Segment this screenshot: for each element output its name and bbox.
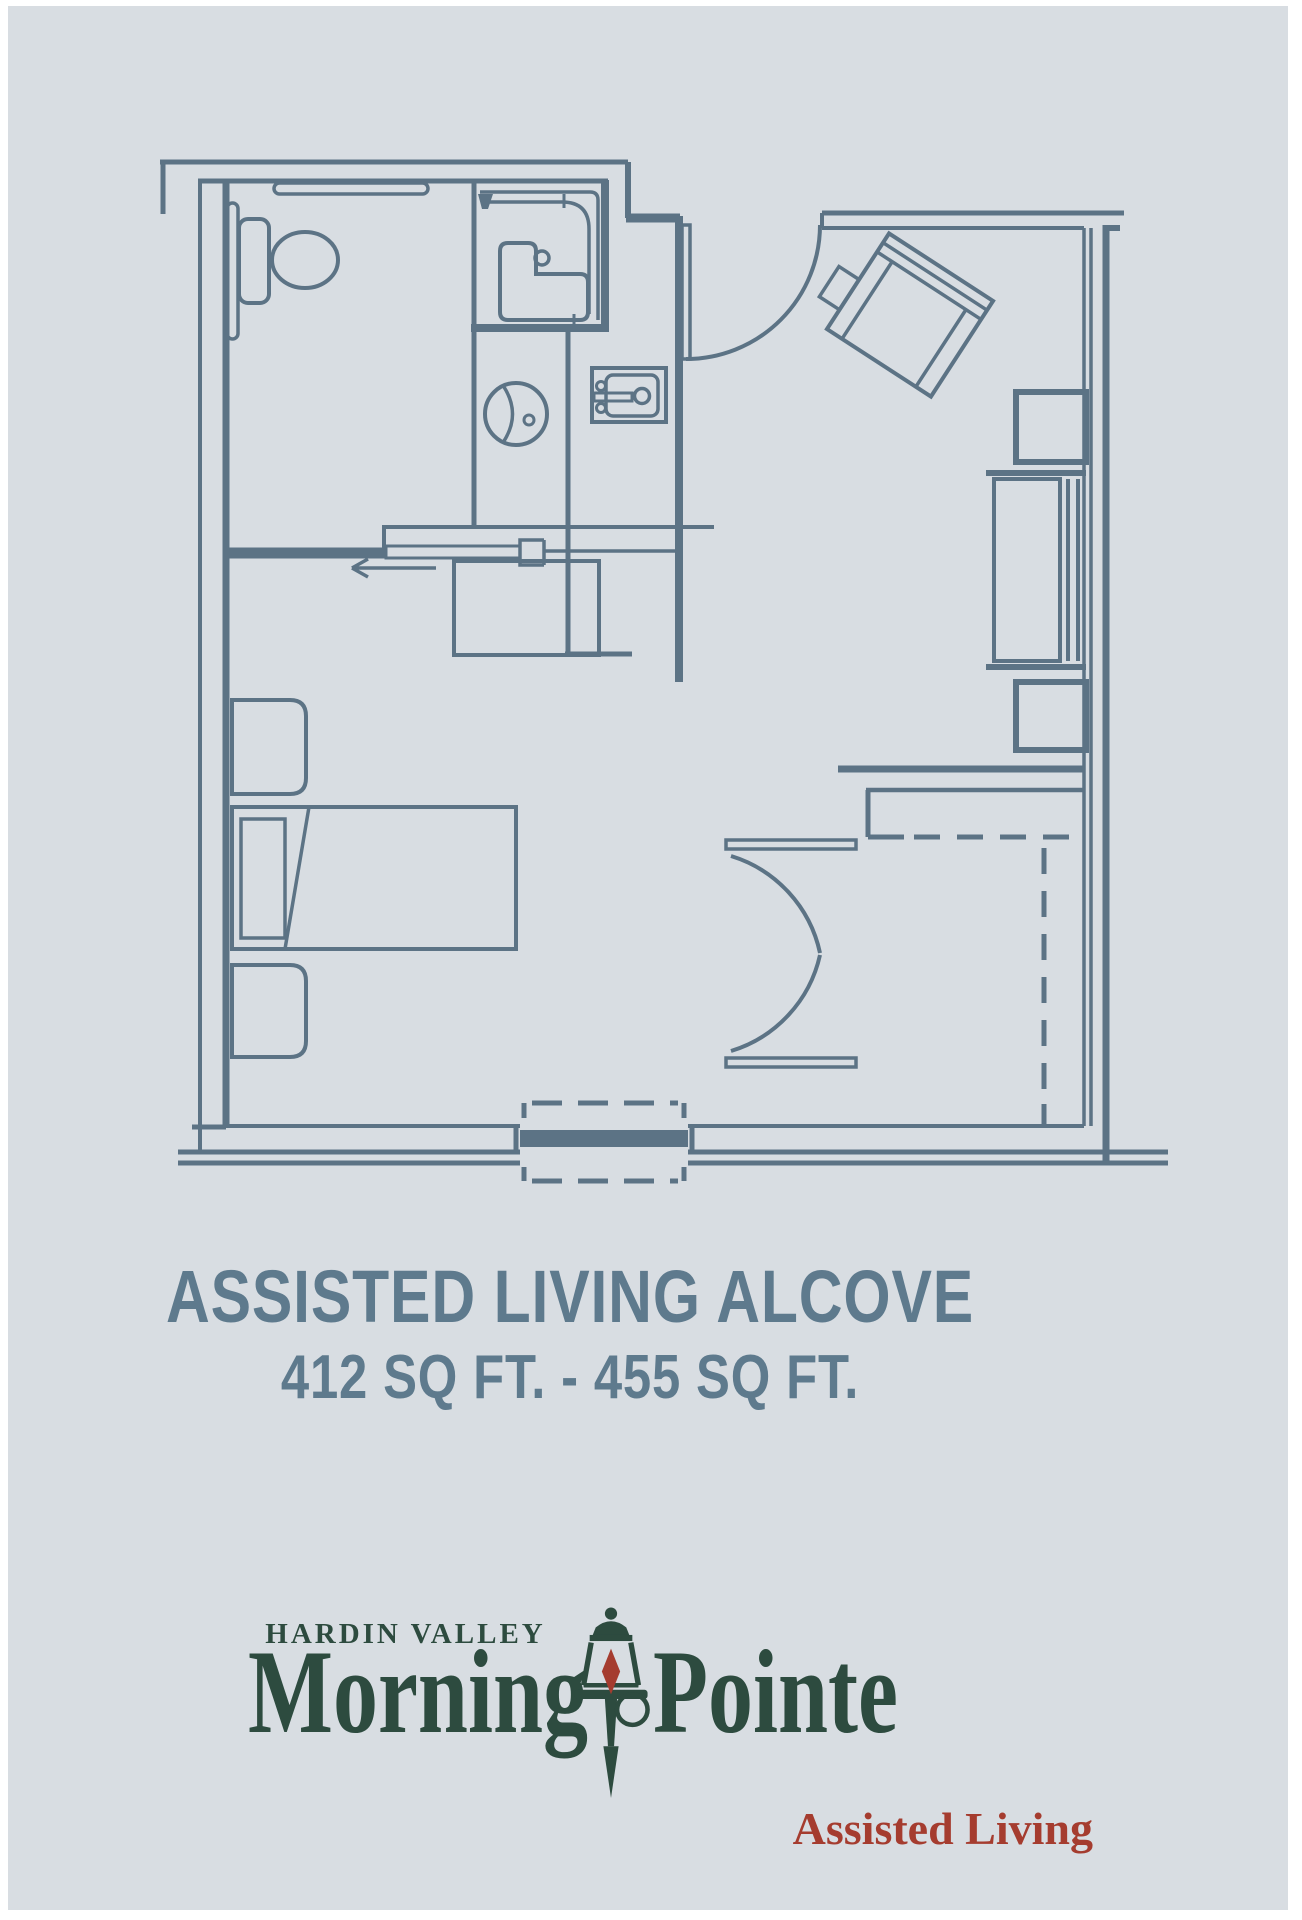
- side-table-bottom: [1016, 682, 1086, 750]
- armchair: [807, 220, 993, 396]
- side-table-top: [1016, 392, 1086, 462]
- floor-plan: [8, 6, 1302, 1236]
- logo-brand-pointe: Pointe: [653, 1632, 898, 1752]
- morning-pointe-logo: HARDIN VALLEY Morning Pointe: [213, 1606, 1113, 1916]
- slide-direction-arrow: [352, 559, 436, 577]
- lamp-post-icon: [565, 1606, 657, 1798]
- pocket-door: [226, 527, 714, 577]
- shower: [471, 180, 608, 332]
- flyer-background: ASSISTED LIVING ALCOVE 412 SQ FT. - 455 …: [8, 6, 1288, 1910]
- entry-door: [682, 225, 820, 359]
- page-title: ASSISTED LIVING ALCOVE: [109, 1254, 1031, 1339]
- logo-tagline: Assisted Living: [653, 1802, 1093, 1855]
- nightstand-bottom: [232, 965, 306, 1057]
- dresser: [986, 473, 1086, 667]
- flyer-page: ASSISTED LIVING ALCOVE 412 SQ FT. - 455 …: [0, 0, 1302, 1920]
- desk: [454, 561, 599, 655]
- bed: [232, 807, 516, 949]
- chair-side-pocket: [819, 266, 859, 309]
- vanity-sink: [485, 383, 547, 445]
- logo-brand-morning: Morning: [248, 1632, 588, 1752]
- square-footage: 412 SQ FT. - 455 SQ FT.: [109, 1342, 1031, 1413]
- alcove-double-doors: [726, 840, 856, 1067]
- pillow: [241, 819, 285, 938]
- grab-bars: [227, 183, 428, 339]
- alcove-dashed-outline: [868, 837, 1084, 1125]
- toilet: [239, 219, 338, 303]
- window: [516, 1103, 692, 1181]
- kitchenette-sink: [592, 368, 666, 422]
- blanket-fold: [285, 807, 309, 949]
- shower-seat: [500, 243, 588, 320]
- nightstand-top: [232, 700, 306, 794]
